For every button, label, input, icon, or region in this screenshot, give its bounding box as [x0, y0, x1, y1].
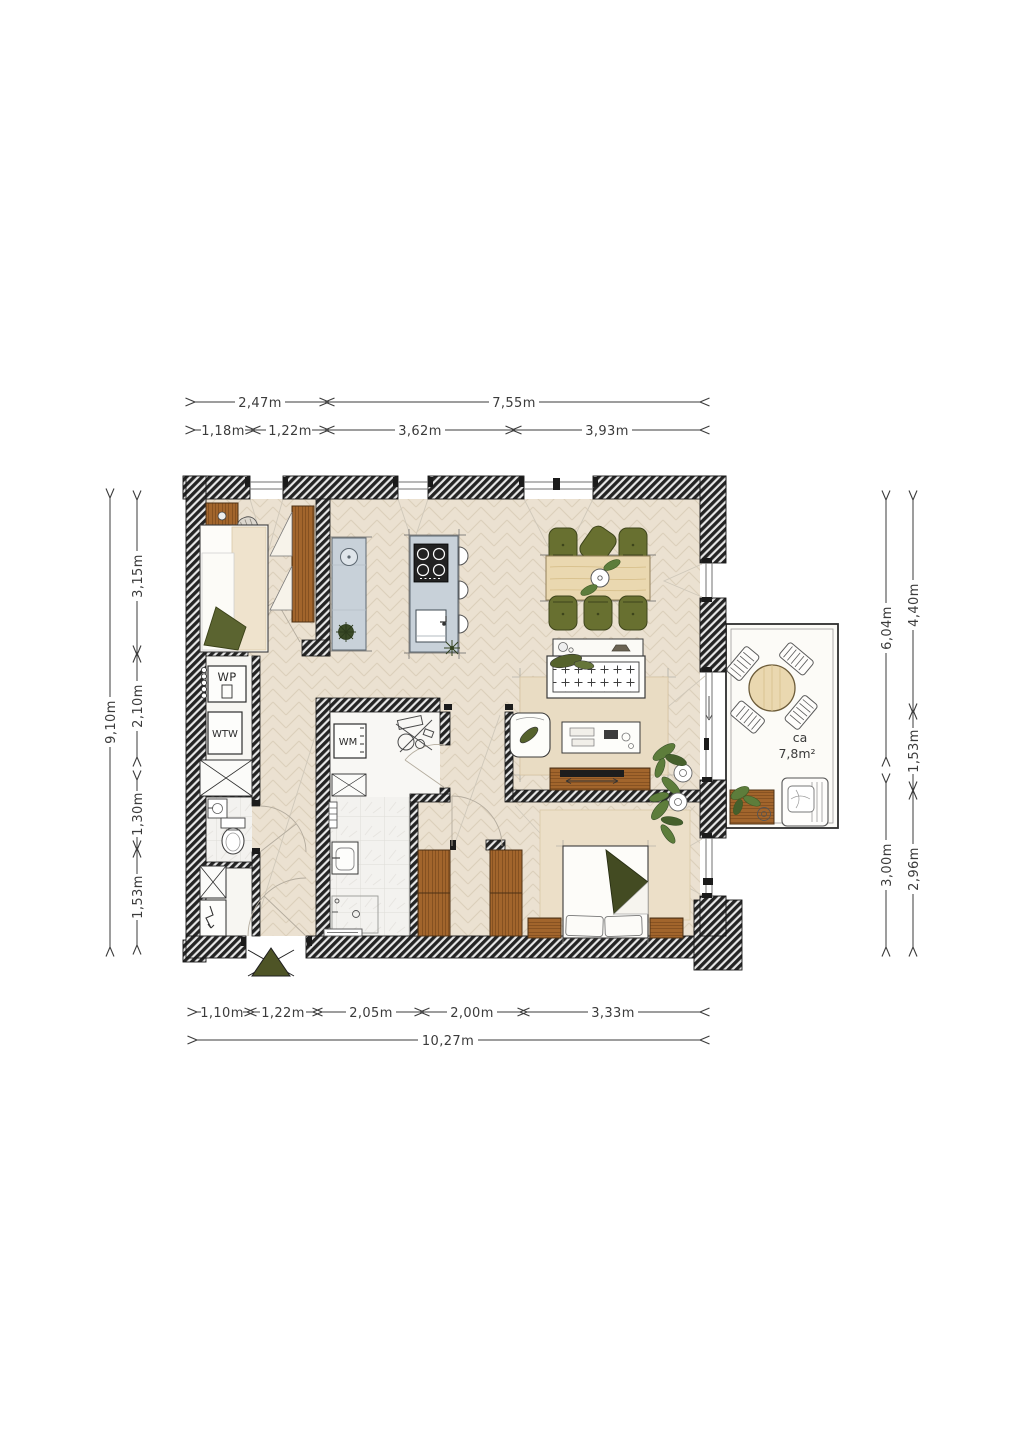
balcony-area-prefix: ca: [793, 730, 808, 745]
dim-left-130: 1,30m: [131, 792, 146, 836]
wall-top-3: [428, 476, 524, 499]
wall-bathroom-north: [330, 698, 440, 712]
dim-bottom-205: 2,05m: [349, 1006, 393, 1021]
washing-machine-label: WM: [339, 737, 358, 748]
dim-right-440: 4,40m: [907, 583, 922, 627]
wall-right-2: [700, 598, 726, 672]
wall-bottom-1: [186, 936, 246, 958]
dim-right-604: 6,04m: [880, 606, 895, 650]
dim-left-315: 3,15m: [131, 554, 146, 598]
window-kitchen-glass: [398, 482, 428, 489]
dining-chairs-bottom: [549, 596, 647, 630]
towel-radiator: [329, 802, 337, 828]
window-balcony-door-glass: [706, 563, 712, 598]
nightstand-right: [650, 918, 683, 938]
dim-bottom-total: 10,27m: [422, 1034, 474, 1049]
entrance-triangle: [252, 948, 290, 976]
floorplan-page: ca 7,8m²: [0, 0, 1018, 1440]
pillow-right: [605, 915, 643, 936]
shaft-1: [200, 760, 252, 796]
window-bedroom1-glass: [250, 482, 283, 489]
slider-handle: [704, 738, 709, 750]
dim-top-362: 3,62m: [398, 424, 442, 439]
window-bedroom2-glass: [706, 838, 712, 896]
heat-recovery-unit: WTW: [208, 712, 242, 754]
balcony-planter: [729, 784, 774, 824]
heat-pump-label: WP: [218, 670, 237, 684]
wall-bedroom1-east: [316, 499, 330, 656]
wall-right-3: [700, 780, 726, 838]
cooktop: [414, 544, 448, 582]
nightstand-left: [528, 918, 561, 938]
shaft-3: [332, 774, 366, 796]
entrance-marker: [248, 948, 294, 976]
heat-recovery-label: WTW: [212, 729, 238, 740]
dim-top-393: 3,93m: [585, 424, 629, 439]
desk-lamp: [218, 512, 226, 520]
dim-bottom-333: 3,33m: [591, 1006, 635, 1021]
dim-bottom-200: 2,00m: [450, 1006, 494, 1021]
dim-right-300: 3,00m: [880, 843, 895, 887]
toilet-cistern: [221, 818, 245, 828]
sofa: [547, 652, 645, 698]
bedroom1-wardrobe: [292, 506, 314, 622]
dim-left-210: 2,10m: [131, 684, 146, 728]
wall-bathroom-east-lower: [410, 802, 418, 936]
dim-right-296: 2,96m: [907, 847, 922, 891]
tv-cabinet: [550, 768, 650, 790]
island-plant: [444, 640, 460, 656]
pillow-left: [566, 915, 604, 936]
shaft-2: [200, 866, 226, 898]
bathroom-sink: [332, 842, 358, 874]
dim-left-910: 9,10m: [104, 700, 119, 744]
dim-right-153: 1,53m: [907, 729, 922, 773]
wall-bottom-2: [306, 936, 700, 958]
double-bed: [563, 846, 648, 938]
sideboard: [553, 639, 643, 656]
wall-right-4: [700, 896, 726, 936]
meter-cupboard: [200, 900, 226, 936]
dining-area: [540, 523, 656, 630]
dimensions-bottom: 1,10m 1,22m 2,05m 2,00m 3,33m 10,27m: [197, 1004, 700, 1049]
wall-right-1: [700, 476, 726, 563]
wall-bathroom-east-a: [440, 712, 450, 745]
wall-tech-east-b: [252, 852, 260, 936]
window-dining-mullion: [553, 478, 560, 490]
heat-pump-unit: WP: [201, 666, 246, 702]
dim-top-247: 2,47m: [238, 396, 282, 411]
dim-bottom-110: 1,10m: [200, 1006, 244, 1021]
wall-bathroom-step: [410, 794, 450, 802]
window-bedroom2-mullion: [703, 878, 713, 885]
dim-left-153: 1,53m: [131, 875, 146, 919]
wall-top-2: [283, 476, 398, 499]
wall-tech-east-a: [252, 656, 260, 806]
dimensions-right: 6,04m 3,00m 4,40m 1,53m 2,96m: [878, 500, 922, 947]
bar-stools: [459, 547, 468, 633]
coffee-table: [562, 722, 640, 753]
counter-plant: [336, 622, 356, 642]
dim-bottom-122: 1,22m: [261, 1006, 305, 1021]
dimensions-top: 2,47m 7,55m 1,18m 1,22m 3,62m 3,93m: [195, 394, 700, 439]
armchair: [510, 713, 550, 757]
tv-screen: [560, 770, 624, 777]
wall-bathroom-west: [316, 698, 330, 936]
balcony-lounge-chair: [782, 778, 828, 826]
dim-top-118: 1,18m: [201, 424, 245, 439]
balcony-area-value: 7,8m²: [778, 746, 815, 761]
slider-direction-arrow: [706, 696, 712, 720]
balcony: ca 7,8m²: [726, 624, 838, 828]
floorplan-drawing: ca 7,8m²: [0, 0, 1018, 1440]
toilet-bowl: [222, 828, 244, 854]
wall-bedroom1-south-b: [302, 640, 330, 656]
dim-top-755: 7,55m: [492, 396, 536, 411]
dimensions-left: 9,10m 3,15m 2,10m 1,30m 1,53m: [102, 498, 146, 947]
dim-top-122: 1,22m: [268, 424, 312, 439]
slider-door-glass: [706, 672, 712, 780]
washing-machine: WM: [334, 724, 366, 758]
island-sink: [416, 610, 446, 642]
